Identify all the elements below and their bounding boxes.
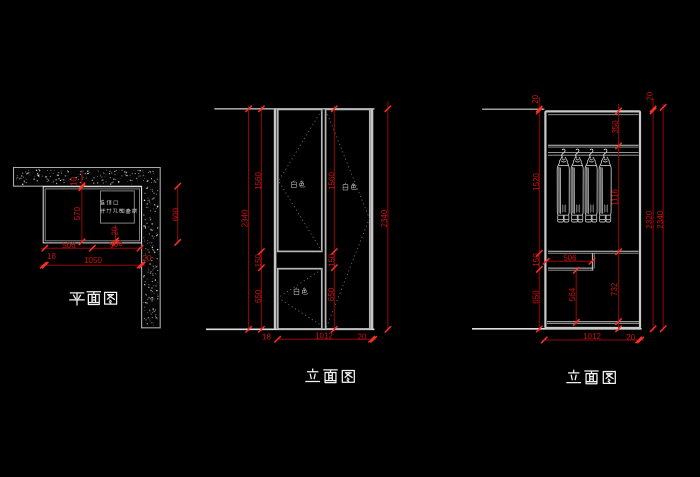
svg-text:732: 732 — [610, 282, 619, 296]
svg-text:506: 506 — [563, 254, 577, 263]
svg-text:18: 18 — [47, 252, 56, 261]
svg-text:2340: 2340 — [240, 209, 249, 227]
svg-text:2340: 2340 — [380, 209, 389, 227]
svg-text:1560: 1560 — [254, 172, 263, 190]
svg-text:600: 600 — [172, 207, 181, 221]
svg-text:570: 570 — [73, 206, 82, 220]
svg-text:650: 650 — [531, 290, 540, 304]
svg-text:564: 564 — [568, 287, 577, 301]
svg-text:1050: 1050 — [84, 256, 102, 265]
svg-text:650: 650 — [327, 287, 336, 301]
svg-text:1116: 1116 — [610, 188, 619, 205]
svg-text:2340: 2340 — [656, 210, 665, 228]
svg-text:650: 650 — [254, 289, 263, 303]
svg-text:20: 20 — [358, 332, 367, 341]
svg-text:1012: 1012 — [583, 332, 601, 341]
svg-text:350: 350 — [611, 120, 620, 134]
svg-text:1560: 1560 — [327, 172, 336, 190]
svg-text:20: 20 — [531, 94, 540, 103]
svg-text:506: 506 — [62, 241, 76, 250]
svg-text:1520: 1520 — [532, 172, 541, 190]
svg-text:150: 150 — [254, 253, 263, 267]
svg-text:1012: 1012 — [315, 332, 333, 341]
svg-text:20: 20 — [143, 254, 152, 263]
svg-text:20: 20 — [110, 226, 119, 235]
svg-text:20: 20 — [645, 91, 654, 100]
svg-text:2320: 2320 — [645, 210, 654, 228]
svg-text:18: 18 — [262, 333, 271, 342]
svg-text:10: 10 — [69, 176, 78, 185]
svg-text:20: 20 — [626, 333, 635, 342]
svg-text:150: 150 — [532, 253, 541, 267]
svg-text:150: 150 — [327, 253, 336, 267]
